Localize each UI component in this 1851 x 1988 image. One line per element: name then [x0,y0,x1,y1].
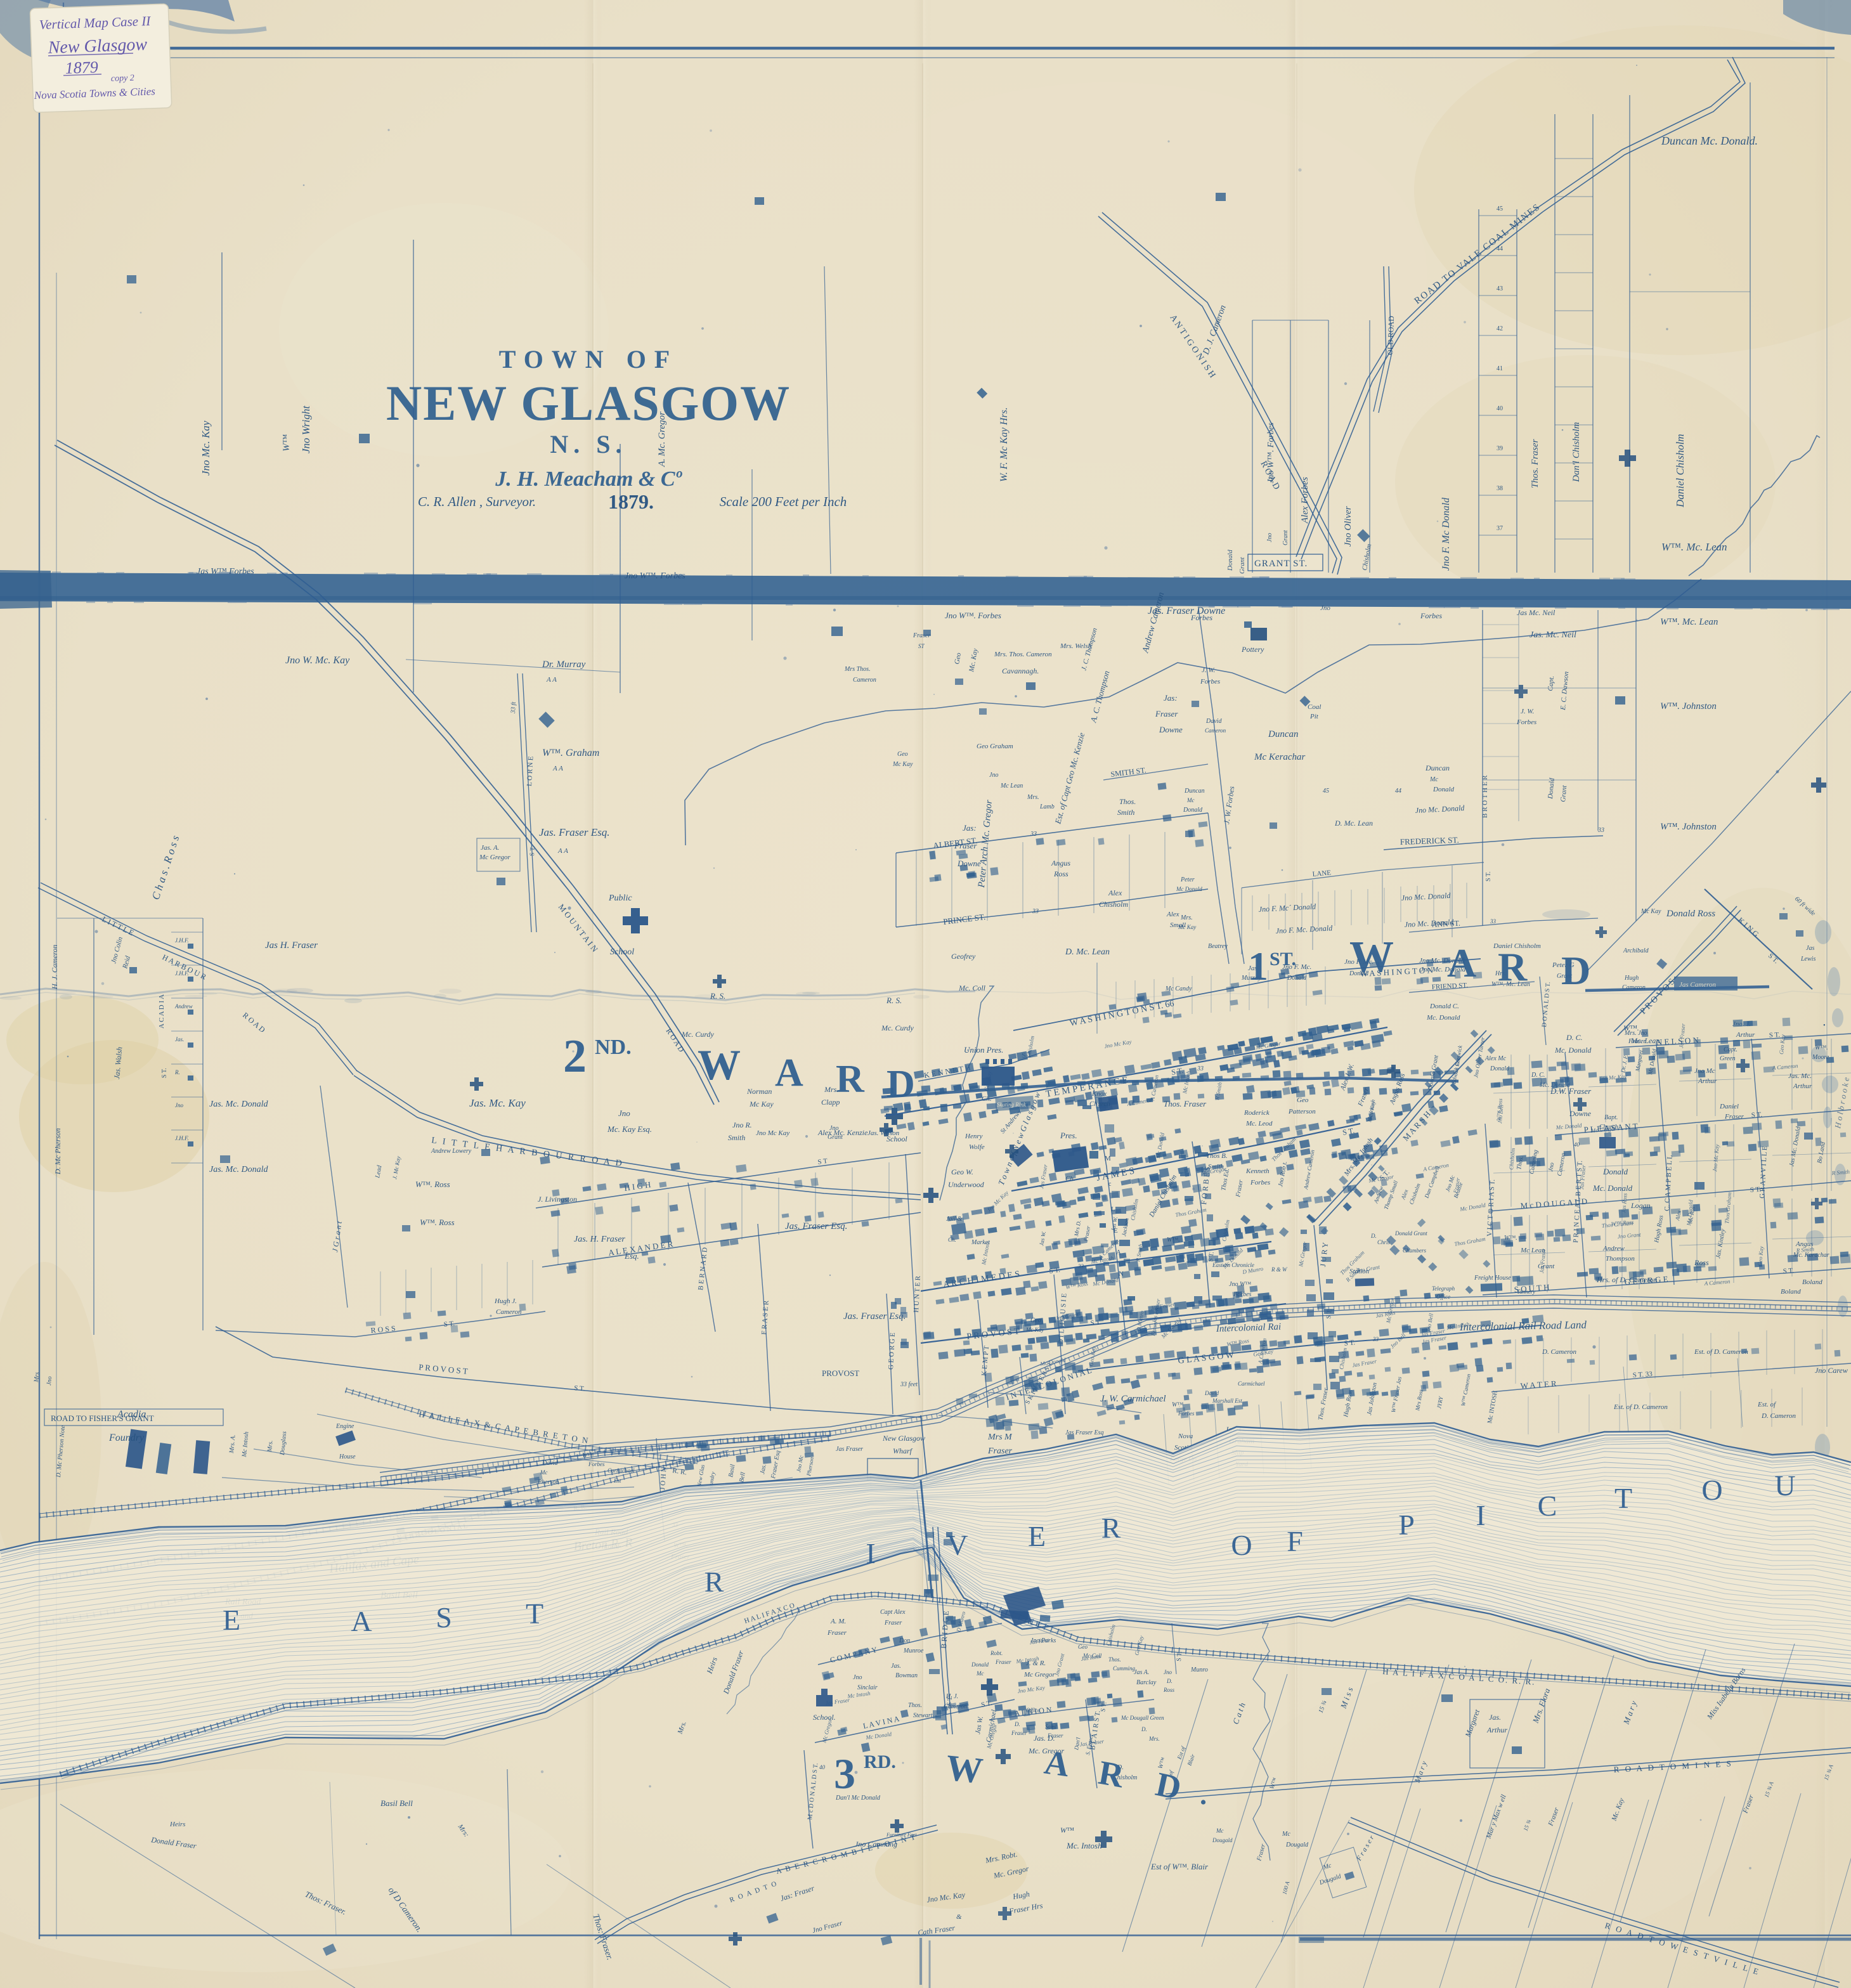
svg-text:Grant: Grant [1238,557,1246,574]
svg-text:Ch.: Ch. [1065,1175,1075,1183]
svg-text:Jno: Jno [1164,1669,1172,1675]
svg-text:A: A [1042,1743,1072,1784]
svg-text:Mrs Thos.: Mrs Thos. [844,666,871,673]
svg-text:E: E [1028,1520,1046,1552]
svg-text:Munroe: Munroe [903,1647,924,1654]
svg-text:ST.: ST. [1270,949,1296,970]
svg-text:S T: S T [817,1157,828,1166]
svg-text:D. C.: D. C. [1531,1072,1545,1079]
svg-text:NEW GLASGOW: NEW GLASGOW [386,375,791,431]
svg-text:C. R. Allen , Surveyor.: C. R. Allen , Surveyor. [418,494,536,509]
svg-text:Est. of D. Cameron: Est. of D. Cameron [1694,1348,1748,1356]
svg-text:Mc Kay: Mc Kay [892,761,913,768]
svg-text:H. J.: H. J. [945,1693,958,1700]
svg-text:Green: Green [1720,1055,1736,1062]
svg-text:W™. Ross: W™. Ross [420,1218,455,1227]
svg-text:Daniel Chisholm: Daniel Chisholm [1674,434,1686,508]
svg-text:Wolfe: Wolfe [969,1143,985,1151]
svg-text:44: 44 [1497,245,1503,252]
svg-text:R: R [836,1058,865,1101]
svg-text:Jno F. Mc Donald: Jno F. Mc Donald [1441,497,1452,571]
svg-text:Norman: Norman [746,1087,772,1096]
svg-text:Mc Lean: Mc Lean [1000,783,1023,789]
svg-text:Pres.: Pres. [1060,1131,1077,1140]
svg-text:Knox: Knox [1091,1090,1107,1098]
svg-text:S T.: S T. [1769,1031,1781,1039]
svg-text:Henry: Henry [964,1133,983,1140]
svg-text:Mc: Mc [1216,1828,1224,1834]
svg-text:45: 45 [1497,205,1503,212]
svg-text:Dan'l Chisholm: Dan'l Chisholm [1571,422,1581,483]
svg-text:Donald: Donald [1226,550,1234,572]
svg-text:Mc Gregor: Mc Gregor [479,854,510,861]
svg-text:Jno W™: Jno W™ [1229,1281,1251,1288]
svg-text:Jno Mc Kay: Jno Mc Kay [756,1129,789,1137]
svg-text:Scale 200 Feet per Inch: Scale 200 Feet per Inch [720,494,847,509]
svg-text:Mc Lean: Mc Lean [1520,1247,1545,1254]
svg-text:J.H.F.: J.H.F. [175,970,189,977]
svg-text:Jno Oliver: Jno Oliver [1343,506,1353,547]
svg-text:Thos. Fraser: Thos. Fraser [1164,1099,1207,1108]
svg-text:Jno Mc. Kay: Jno Mc. Kay [200,420,212,476]
svg-text:Thos B.: Thos B. [1206,1152,1228,1160]
svg-text:Esq.: Esq. [624,1251,639,1261]
svg-text:Heirs: Heirs [169,1821,185,1828]
svg-text:43: 43 [1497,285,1503,292]
svg-text:Daniel: Daniel [1719,1103,1739,1110]
svg-text:Smith: Smith [1117,808,1134,817]
svg-text:W: W [1349,933,1394,982]
svg-text:Marshall Est: Marshall Est [1212,1398,1242,1404]
svg-text:ROAD TO FISHER'S GRANT: ROAD TO FISHER'S GRANT [51,1413,154,1423]
svg-text:Smith: Smith [728,1133,745,1142]
svg-text:Peter: Peter [1180,876,1195,883]
svg-text:1879.: 1879. [608,490,654,513]
svg-text:Mrs. Thos. Cameron: Mrs. Thos. Cameron [994,651,1052,658]
svg-text:Wharf: Wharf [893,1446,913,1455]
svg-text:Fraser: Fraser [1724,1113,1744,1121]
svg-text:Jas. Mc. Donald: Jas. Mc. Donald [209,1100,269,1109]
svg-text:LANE: LANE [1312,869,1332,878]
svg-text:Fraser: Fraser [1155,709,1178,718]
svg-text:Alex Mc. Kenzie: Alex Mc. Kenzie [817,1128,868,1137]
svg-text:R.: R. [174,1069,180,1075]
svg-text:I: I [1476,1499,1485,1531]
svg-text:Church: Church [1089,1100,1110,1108]
svg-text:J. Livingston: J. Livingston [538,1195,577,1204]
svg-text:Donald: Donald [971,1661,989,1668]
svg-text:Jas Fraser: Jas Fraser [836,1446,863,1453]
svg-text:B R O T H E R: B R O T H E R [1481,775,1489,818]
svg-text:R: R [1101,1512,1121,1544]
svg-text:40: 40 [1497,405,1503,412]
svg-text:Sinclair: Sinclair [857,1684,878,1691]
svg-text:33 ft: 33 ft [510,701,517,714]
svg-text:Geo W.: Geo W. [951,1167,973,1176]
svg-text:Tannery: Tannery [1517,1289,1535,1295]
svg-text:Munro: Munro [1190,1666,1208,1673]
svg-text:Cameron: Cameron [853,677,876,684]
svg-text:Pit: Pit [1309,713,1319,720]
svg-text:Jas. Mc. Kay: Jas. Mc. Kay [469,1097,526,1109]
svg-text:Cameron: Cameron [944,1703,967,1710]
svg-text:Dougald: Dougald [1285,1842,1309,1848]
svg-text:I: I [866,1537,875,1569]
svg-text:S T.: S T. [161,1068,168,1078]
svg-text:D. Mc. Lean: D. Mc. Lean [1065,947,1110,957]
svg-text:R: R [1498,944,1528,989]
svg-text:Jas. A.: Jas. A. [481,844,499,852]
svg-text:W™: W™ [1060,1826,1074,1835]
svg-text:Jno: Jno [618,1108,630,1118]
svg-text:Hugh: Hugh [1624,975,1639,982]
svg-text:Jno: Jno [829,1125,838,1132]
svg-text:D. C.: D. C. [1566,1033,1583,1042]
svg-text:Barclay: Barclay [1136,1679,1157,1686]
svg-text:Jno: Jno [1266,533,1273,542]
svg-text:Mrs.: Mrs. [1180,914,1193,921]
svg-text:Telegraph: Telegraph [1432,1285,1455,1292]
svg-text:Engine: Engine [335,1423,354,1430]
svg-text:R: R [705,1566,724,1598]
svg-text:J.H.F.: J.H.F. [175,1135,189,1141]
svg-text:Station: Station [1349,1268,1370,1275]
svg-text:2: 2 [563,1030,587,1082]
svg-text:Fraser: Fraser [954,841,977,850]
svg-text:Jno: Jno [989,772,998,779]
svg-text:Forbes: Forbes [1250,1179,1270,1186]
svg-text:ST: ST [918,643,925,649]
svg-text:42: 42 [1497,325,1503,332]
svg-text:Donald: Donald [1183,807,1203,814]
svg-text:Mc. Donald: Mc. Donald [1554,1046,1592,1055]
svg-text:S T.: S T. [1176,1651,1183,1661]
svg-text:Jno R.: Jno R. [732,1121,752,1129]
svg-text:Geo: Geo [1030,1317,1041,1324]
svg-text:Bapt.: Bapt. [1604,1114,1618,1121]
svg-text:Jno Mc: Jno Mc [1694,1067,1715,1075]
svg-text:•: • [1823,1022,1826,1029]
svg-text:W™. Johnston: W™. Johnston [1660,822,1717,832]
svg-text:Fraser: Fraser [827,1629,847,1637]
svg-text:33: 33 [1032,908,1039,915]
svg-text:D: D [1561,948,1590,993]
svg-text:Andrew: Andrew [1602,1245,1625,1252]
svg-text:Ross: Ross [1053,869,1068,878]
svg-text:Duncan: Duncan [1184,788,1205,795]
svg-text:Chris: Chris [1377,1239,1391,1245]
svg-text:Donald: Donald [1432,786,1455,793]
svg-text:Hrs. of D. Cameron: Hrs. of D. Cameron [1596,1275,1657,1284]
svg-text:D. Mc. Lean: D. Mc. Lean [1334,819,1373,828]
svg-text:Thos.: Thos. [1108,1656,1121,1663]
svg-text:Mrs.: Mrs. [1148,1736,1160,1742]
svg-text:Jas: Jas [1806,945,1814,952]
svg-text:Boland: Boland [1781,1288,1801,1296]
svg-text:Mc. Leod: Mc. Leod [1245,1120,1273,1127]
svg-text:W: W [944,1746,985,1791]
svg-text:Forbes: Forbes [1190,613,1212,622]
svg-text:Stewart: Stewart [913,1712,933,1719]
svg-text:39: 39 [1497,445,1503,452]
svg-text:Jno: Jno [175,1102,183,1108]
svg-text:Mc Candy: Mc Candy [1165,985,1192,992]
svg-text:41: 41 [1497,365,1503,372]
svg-text:Public: Public [608,893,632,903]
svg-text:Capt.: Capt. [1724,1046,1737,1053]
svg-text:Donald: Donald [1602,1167,1628,1176]
svg-text:W. F. Mc Kay Hrs.: W. F. Mc Kay Hrs. [999,407,1010,482]
svg-text:Carmichael: Carmichael [607,1467,635,1474]
svg-text:Dr. Murray: Dr. Murray [542,659,586,670]
svg-text:Thos.: Thos. [908,1702,922,1709]
svg-text:Geofrey: Geofrey [951,952,976,961]
svg-text:Lamb: Lamb [1039,803,1055,810]
svg-text:Mrs: Mrs [33,1372,41,1383]
svg-text:A: A [775,1051,803,1095]
svg-text:P: P [1398,1509,1415,1541]
svg-text:Est. of D. Cameron: Est. of D. Cameron [1613,1403,1668,1411]
svg-text:Geo: Geo [897,751,908,758]
svg-text:Pherson: Pherson [537,1479,559,1486]
svg-text:S T.: S T. [1344,1339,1356,1348]
svg-text:Mc. Donald: Mc. Donald [1592,1183,1633,1193]
svg-text:Mc. Curdy: Mc. Curdy [681,1030,715,1039]
svg-text:Bowman: Bowman [895,1672,918,1679]
svg-text:Beatrey: Beatrey [1208,943,1228,950]
svg-text:Mc. Intosh: Mc. Intosh [1066,1841,1102,1850]
svg-text:Mc: Mc [1186,797,1195,803]
svg-text:45: 45 [1323,788,1329,795]
svg-text:Grant: Grant [1282,530,1289,545]
svg-text:A A: A A [552,765,563,772]
svg-text:Arthur: Arthur [1793,1082,1812,1090]
svg-text:Lewis: Lewis [1800,956,1815,963]
svg-text:Thos. Fraser: Thos. Fraser [1530,439,1540,488]
svg-text:Jas. Fraser Esq.: Jas. Fraser Esq. [785,1221,847,1231]
svg-text:W™: W™ [582,1452,594,1459]
svg-text:Grant: Grant [1559,784,1568,802]
svg-text:Grant: Grant [828,1134,843,1141]
svg-text:Donald C.: Donald C. [1429,1003,1459,1010]
svg-text:Church: Church [1599,1124,1618,1131]
svg-text:Market: Market [971,1239,990,1246]
svg-text:Jno W™. Forbes: Jno W™. Forbes [945,611,1001,620]
svg-text:A A: A A [546,676,557,684]
svg-text:T: T [526,1597,543,1630]
svg-text:Fraser: Fraser [1628,1038,1646,1045]
svg-text:Cumming: Cumming [1113,1665,1136,1672]
svg-text:Freight House: Freight House [1474,1275,1511,1282]
svg-text:S T.: S T. [529,846,536,856]
svg-text:F: F [1287,1525,1303,1557]
svg-text:Est: Est [613,1478,621,1484]
svg-text:Geo: Geo [1297,1096,1309,1104]
svg-text:Jas. H. Fraser: Jas. H. Fraser [574,1235,625,1244]
svg-text:Cameron: Cameron [1205,727,1226,734]
svg-text:O: O [1231,1529,1252,1561]
svg-text:33: 33 [1490,918,1497,925]
svg-text:L O R N E: L O R N E [526,756,535,786]
svg-text:Jas. Fraser Esq.: Jas. Fraser Esq. [539,826,609,838]
svg-text:Archibald: Archibald [1623,947,1649,954]
svg-text:Jno Parks: Jno Parks [1030,1637,1056,1644]
svg-text:33: 33 [1030,831,1037,838]
svg-text:Carmichael: Carmichael [1238,1381,1265,1387]
svg-text:Mrs.: Mrs. [1027,794,1039,801]
svg-text:Saml: Saml [1045,1724,1056,1730]
svg-text:Jas Cameron: Jas Cameron [1679,981,1716,989]
svg-text:W™.: W™. [1167,1237,1180,1244]
svg-text:Mc Gregor: Mc Gregor [1023,1671,1055,1679]
svg-text:40: 40 [1574,1141,1580,1148]
svg-text:Mc: Mc [976,1670,984,1677]
svg-text:Ross: Ross [1163,1687,1175,1693]
svg-text:J. W. Carmichael: J. W. Carmichael [1100,1394,1166,1404]
svg-text:O: O [1701,1474,1722,1506]
svg-text:33: 33 [1597,827,1604,834]
svg-text:S T.: S T. [1751,1111,1762,1119]
svg-text:Jno: Jno [853,1674,862,1681]
svg-text:School: School [610,947,634,957]
svg-text:Downe: Downe [1159,725,1183,734]
svg-text:Forbes: Forbes [588,1461,605,1467]
svg-text:Mc. Donald: Mc. Donald [1426,1014,1460,1022]
svg-text:Andrew Lowery: Andrew Lowery [431,1148,472,1155]
svg-text:Basil Bell: Basil Bell [380,1798,413,1808]
svg-text:Ch.: Ch. [948,1237,956,1243]
svg-text:Mrs.: Mrs. [266,1440,275,1453]
svg-text:Mrs M: Mrs M [987,1433,1013,1442]
svg-text:W™. Johnston: W™. Johnston [1660,701,1717,711]
svg-text:Pottery: Pottery [1241,645,1264,654]
svg-text:Roderick: Roderick [1244,1109,1270,1117]
svg-text:RD.: RD. [864,1751,896,1772]
svg-text:Jas H. Fraser: Jas H. Fraser [265,940,318,951]
svg-text:Jno Camming: Jno Camming [855,1840,897,1848]
svg-text:Logan: Logan [1630,1201,1651,1210]
svg-text:Alex Forbes: Alex Forbes [1300,477,1310,524]
svg-text:c: c [1108,1181,1112,1188]
svg-text:Geo Graham: Geo Graham [977,743,1013,750]
svg-text:Jno Wright: Jno Wright [300,405,312,453]
svg-text:Donald Ross: Donald Ross [1666,909,1715,919]
svg-text:J O H N: J O H N [659,1467,668,1490]
svg-text:Skating Rink: Skating Rink [997,1101,1027,1108]
svg-text:R. S.: R. S. [886,996,902,1005]
svg-text:W™. Ross: W™. Ross [415,1179,450,1189]
svg-text:E: E [223,1604,240,1636]
svg-text:ANN ST.: ANN ST. [1431,919,1460,929]
svg-text:R. S.: R. S. [710,991,725,1001]
svg-text:D: D [887,1063,915,1106]
svg-text:Alex Mc: Alex Mc [1484,1055,1507,1062]
svg-text:S: S [436,1601,452,1634]
svg-text:Mc: Mc [540,1469,548,1476]
svg-text:Mc Dougall Green: Mc Dougall Green [1120,1715,1164,1721]
svg-text:A. M.: A. M. [830,1618,846,1625]
svg-text:Mc. Kay Esq.: Mc. Kay Esq. [607,1124,652,1134]
svg-text:Cavannagh.: Cavannagh. [1002,666,1039,675]
svg-text:Jas Mc. Neil: Jas Mc. Neil [1517,608,1555,617]
svg-text:Mc Kay: Mc Kay [1640,908,1661,915]
svg-text:Mc Kay: Mc Kay [1025,1327,1044,1333]
svg-text:Jno Carew: Jno Carew [1815,1366,1848,1375]
svg-text:W™. Mc. Lean: W™. Mc. Lean [1661,541,1727,553]
svg-text:Underwood: Underwood [948,1180,985,1189]
svg-text:Fraser: Fraser [1011,1730,1027,1736]
svg-text:Angus: Angus [1795,1240,1814,1248]
svg-text:J. W.: J. W. [1521,708,1534,715]
svg-text:D.: D. [1014,1721,1020,1727]
svg-text:copy 2: copy 2 [111,74,134,84]
svg-text:Capt Alex: Capt Alex [880,1609,906,1616]
svg-text:&: & [956,1913,962,1921]
svg-text:D.: D. [1370,1233,1377,1239]
svg-text:S T.: S T. [1485,871,1492,881]
svg-text:Jas W™ Forbes: Jas W™ Forbes [197,567,254,576]
svg-text:Mc Coll: Mc Coll [1082,1653,1102,1659]
svg-text:Thompson: Thompson [1606,1255,1635,1263]
svg-text:Capt.: Capt. [1547,675,1555,691]
svg-text:Thos.: Thos. [1119,797,1136,806]
svg-text:Arthur: Arthur [1736,1031,1755,1039]
svg-text:S T. 33: S T. 33 [1632,1370,1653,1379]
svg-text:Coal: Coal [1308,703,1321,711]
svg-text:H. J. Cameron: H. J. Cameron [50,945,59,990]
svg-text:R & W: R & W [1271,1266,1288,1273]
svg-text:Foundry: Foundry [108,1433,145,1443]
svg-text:Mc: Mc [1429,776,1438,783]
svg-text:Arthur: Arthur [1486,1725,1507,1734]
svg-text:33: 33 [1197,1065,1204,1072]
svg-text:U: U [1774,1469,1795,1502]
svg-text:Hugh J.: Hugh J. [494,1297,517,1305]
svg-text:Donald Grant: Donald Grant [1394,1230,1427,1237]
svg-text:TOWN OF: TOWN OF [499,345,679,374]
svg-text:Alex: Alex [1166,911,1179,918]
svg-text:Fraser: Fraser [884,1620,902,1627]
svg-text:Forbes: Forbes [1233,1291,1251,1298]
svg-text:N. S.: N. S. [550,430,627,458]
svg-text:David: David [542,1460,558,1467]
svg-text:Mc. Karachar: Mc. Karachar [1793,1252,1829,1259]
svg-text:GRANT ST.: GRANT ST. [1254,559,1308,569]
svg-text:Est. of: Est. of [1757,1401,1777,1408]
svg-text:Jno W. Mc. Kay: Jno W. Mc. Kay [285,655,350,666]
svg-text:Chambers: Chambers [1403,1247,1426,1254]
svg-text:Jno W™. Forbes: Jno W™. Forbes [1266,422,1276,483]
svg-text:A: A [351,1605,372,1637]
svg-text:37: 37 [1497,525,1503,532]
svg-text:Mc: Mc [1282,1831,1290,1838]
svg-text:Chisholm: Chisholm [1099,900,1128,909]
svg-text:Duncan Mc. Donald.: Duncan Mc. Donald. [1661,134,1758,147]
svg-text:J.H.F.: J.H.F. [175,937,189,944]
svg-text:A C A D I A: A C A D I A [158,994,166,1029]
svg-text:David: David [1205,718,1222,725]
svg-text:Cameron: Cameron [496,1308,522,1316]
svg-text:Smith: Smith [1208,1163,1224,1171]
svg-text:Jno W™. Forbes: Jno W™. Forbes [625,571,685,581]
svg-text:1: 1 [1248,944,1268,989]
svg-text:A: A [1447,940,1476,985]
svg-text:Boland: Boland [1802,1278,1822,1286]
svg-text:Intercolonial Rail Road L: Intercolonial Rail Road Land [1459,1319,1587,1334]
svg-text:38: 38 [1497,485,1503,492]
svg-text:Duncan: Duncan [1268,729,1299,739]
svg-text:Alex: Alex [1108,888,1122,897]
